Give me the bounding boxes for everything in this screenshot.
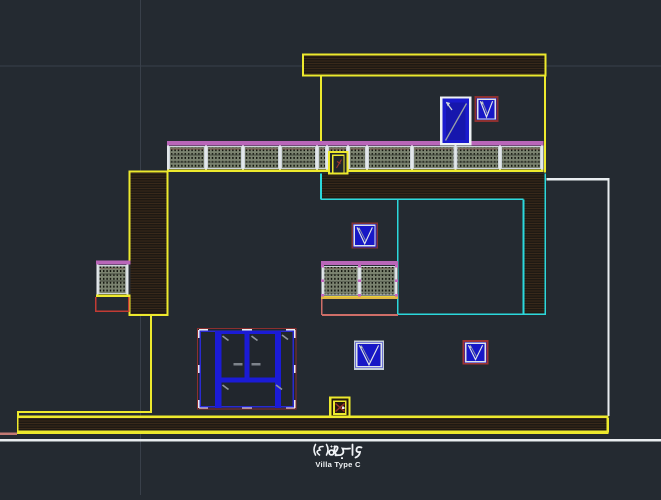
svg-text:Villa Type C: Villa Type C [315,460,361,469]
